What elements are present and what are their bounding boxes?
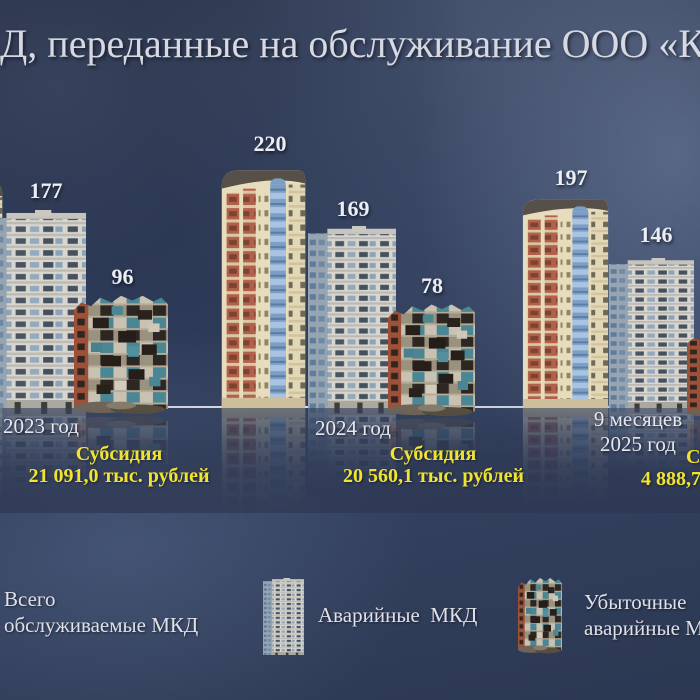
ruined-building-icon <box>74 291 168 415</box>
tower-building-icon <box>214 162 311 408</box>
legend-item-unprofitable: Убыточные аварийные МК <box>584 589 700 641</box>
year-label-2025: 9 месяцев 2025 год <box>592 407 684 457</box>
subsidy-2023-label: Субсидия <box>28 443 210 465</box>
panel-building-icon <box>263 578 304 655</box>
building-total-2024 <box>214 162 311 408</box>
subsidy-2024: Субсидия 20 560,1 тыс. рублей <box>343 443 523 487</box>
legend-item-emergency: Аварийные МКД <box>318 602 477 628</box>
legend-unprofitable-icon <box>518 575 562 654</box>
count-total-2023: 177 <box>16 178 76 204</box>
building-total-2025 <box>515 192 614 408</box>
building-ruined-2023 <box>74 291 168 415</box>
year-label-2025-line1: 9 месяцев <box>592 407 684 432</box>
subsidy-2025-label: Су <box>686 446 700 468</box>
year-label-2025-line2: 2025 год <box>592 432 684 457</box>
panel-building-icon <box>609 258 694 408</box>
building-emergency-2024 <box>308 226 396 408</box>
subsidy-2023: Субсидия 21 091,0 тыс. рублей <box>28 443 210 487</box>
count-emergency-2025: 146 <box>625 222 687 248</box>
legend-total-line1: Всего <box>4 586 198 612</box>
tower-building-icon <box>515 192 614 408</box>
ruined-building-icon <box>388 300 475 417</box>
count-emergency-2024: 169 <box>323 196 383 222</box>
ruined-building-icon <box>518 575 562 654</box>
count-total-2024: 220 <box>240 131 300 157</box>
panel-building-icon <box>308 226 396 408</box>
subsidy-2024-label: Субсидия <box>343 443 523 465</box>
year-label-2024: 2024 год <box>315 416 391 441</box>
legend-emergency-icon <box>263 578 304 655</box>
subsidy-2024-value: 20 560,1 тыс. рублей <box>343 465 523 487</box>
subsidy-2025-value: 4 888,7 <box>641 468 700 490</box>
slide: Д, переданные на обслуживание ООО «Комф <box>0 0 700 700</box>
count-ruined-2024: 78 <box>407 273 457 299</box>
count-total-2025: 197 <box>541 165 601 191</box>
legend-item-total: Всего обслуживаемые МКД <box>4 586 198 638</box>
legend-unprofitable-line1: Убыточные <box>584 589 700 615</box>
building-edge-right <box>687 330 700 418</box>
legend-unprofitable-line2: аварийные МК <box>584 615 700 641</box>
subsidy-2023-value: 21 091,0 тыс. рублей <box>28 465 210 487</box>
ruined-building-icon <box>687 330 700 418</box>
count-ruined-2023: 96 <box>95 264 150 290</box>
legend-total-line2: обслуживаемые МКД <box>4 612 198 638</box>
building-ruined-2024 <box>388 300 475 417</box>
year-label-2023: 2023 год <box>3 414 79 439</box>
building-emergency-2025 <box>609 258 694 408</box>
page-title: Д, переданные на обслуживание ООО «Комф <box>0 20 700 67</box>
